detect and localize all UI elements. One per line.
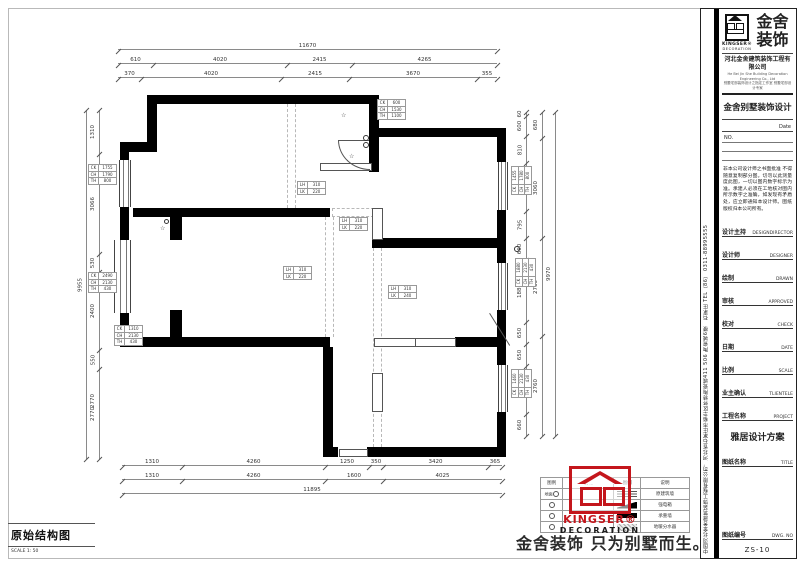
schedule-tag-row: TH1100: [378, 112, 405, 119]
schedule-tag-value: 600: [388, 100, 405, 106]
schedule-tag-key: LH: [389, 286, 399, 292]
schedule-tag-key: CH: [89, 280, 99, 286]
dimension-label: 4260: [182, 459, 325, 465]
schedule-tag-key: TH: [89, 178, 99, 184]
star-symbol: ☆: [341, 113, 346, 119]
dimension-label: 660: [517, 414, 523, 436]
date-label: Date: [722, 120, 793, 132]
title-block-row: 比例SCALE: [722, 355, 793, 375]
schedule-tag-value: 2130: [519, 370, 525, 387]
schedule-tag-key: CK: [516, 276, 522, 286]
title-block-row: 审核APPROVED: [722, 286, 793, 306]
dimension-line: [555, 112, 556, 436]
wall: [120, 207, 129, 240]
ruled-line: [722, 143, 793, 152]
dimension-column: 9955: [77, 110, 87, 459]
schedule-tag-value: 2490: [99, 273, 116, 279]
schedule-tag-row: CH2130: [89, 279, 116, 286]
schedule-tag-row: TH800: [89, 177, 116, 184]
dashed-wall-opening: [332, 208, 374, 217]
schedule-tag-row: CK1310: [115, 326, 142, 332]
schedule-tag-rotated: CK1460CH2130TH430: [511, 370, 531, 398]
dimension-label: 2770: [90, 391, 96, 411]
field-label-cn: 比例: [722, 365, 734, 374]
schedule-tag-row: TH430: [115, 338, 142, 345]
schedule-tag-value: 430: [529, 259, 535, 276]
dashed-line: [381, 248, 382, 447]
schedule-tag-value: 1880: [516, 259, 522, 276]
schedule-tag-row: TH430: [524, 370, 531, 397]
dimension-label: 4020: [153, 57, 287, 63]
field-label-en: CHECK: [778, 323, 793, 328]
field-label-en: DATE: [781, 346, 793, 351]
field-label-en: SCALE: [779, 369, 793, 374]
program-title: 金舍别墅装饰设计: [722, 95, 793, 120]
dimension-label: 11670: [118, 43, 497, 49]
schedule-tag-value: 430: [125, 339, 142, 345]
wall: [367, 447, 506, 457]
schedule-tag: LH310LK220: [297, 181, 326, 195]
dimension-label: 3420: [383, 459, 488, 465]
schedule-tag-key: CK: [378, 100, 388, 106]
kingser-seal-icon: [569, 466, 631, 514]
schedule-tag-row: CH2130: [518, 370, 525, 397]
schedule-tag-value: 1755: [99, 165, 116, 171]
schedule-tag: CK1460CH2130TH430: [511, 369, 532, 398]
schedule-tag-row: LH310: [340, 218, 367, 224]
schedule-tag: LH310LK220: [339, 217, 368, 231]
schedule-tag-value: 430: [525, 370, 531, 387]
star-symbol: ☆: [160, 226, 165, 232]
title-block-row: 日期DATE: [722, 332, 793, 352]
schedule-tag-value: 800: [525, 167, 531, 184]
schedule-tag-key: LK: [340, 225, 350, 231]
field-label-cn: 设计师: [722, 250, 740, 259]
dashed-line: [325, 217, 326, 337]
schedule-tag-key: LK: [389, 293, 399, 299]
dimension-label: 550: [90, 350, 96, 369]
company-name-en: He Bei Jin She Building Decoration Engin…: [722, 72, 793, 81]
dimension-label: 600: [517, 116, 523, 136]
circle-legend-icon: [549, 513, 555, 519]
schedule-tag-key: CH: [89, 172, 99, 178]
title-block-row: 业主确认TLIENTELE: [722, 378, 793, 398]
door-frame: [372, 373, 383, 412]
wall: [379, 128, 506, 137]
copyright-notice: 非本公司设计师之书面批准 不得随意复制部分图。切勿以此测量度此图，一切以图内数字…: [723, 167, 792, 213]
schedule-tag: CK2490CH2130TH430: [88, 272, 117, 293]
wall: [170, 310, 182, 337]
dimension-label: 11895: [122, 487, 502, 493]
schedule-tag: CK1880CH2130TH430: [515, 258, 536, 287]
sliding-door: [374, 338, 456, 347]
schedule-tag-row: LK220: [284, 273, 311, 280]
dimension-label: 1310: [122, 459, 182, 465]
field-label-cn: 业主确认: [722, 388, 746, 397]
schedule-tag-row: TH430: [89, 285, 116, 292]
dimension-label: 9970: [546, 112, 552, 436]
dimension-line: [118, 63, 497, 64]
schedule-tag-key: TH: [525, 387, 531, 397]
door-frame: [372, 208, 383, 240]
title-block-row: 绘制DRAWN: [722, 263, 793, 283]
schedule-tag-key: TH: [529, 276, 535, 286]
wall: [497, 128, 506, 162]
schedule-tag-key: LH: [340, 218, 350, 224]
schedule-tag-key: CH: [519, 184, 525, 194]
window: [119, 160, 131, 207]
dimension-row: 610402024154265: [118, 56, 497, 64]
schedule-tag-rotated: CK1455CH1780TH800: [511, 167, 531, 195]
dimension-label: 4020: [141, 71, 281, 77]
window: [498, 263, 508, 310]
company-tagline: 别墅宅邸装饰设计之指定工作室 别墅宅邸设计专家: [722, 81, 793, 90]
field-label-en: DRAWN: [776, 277, 793, 282]
brand-cn: 金舍 装饰: [752, 13, 793, 49]
wall: [323, 347, 333, 447]
drawing-title-block: 原始结构图: [8, 523, 95, 547]
schedule-tag-value: 1780: [519, 167, 525, 184]
dimension-line: [122, 493, 502, 494]
schedule-tag-key: TH: [525, 184, 531, 194]
schedule-tag-key: LK: [298, 189, 308, 195]
dimension-row: 11895: [122, 486, 502, 494]
schedule-tag: CK1755CH1790TH800: [88, 164, 117, 185]
dimension-label: 530: [90, 254, 96, 272]
field-label-cn: 校对: [722, 319, 734, 328]
fixture-circle: [164, 219, 169, 224]
dimension-line: [86, 110, 87, 459]
field-label-cn: 绘制: [722, 273, 734, 282]
schedule-tag-key: CH: [378, 107, 388, 113]
schedule-tag-rotated: CK1880CH2130TH430: [515, 259, 535, 287]
kingser-stamp: KINGSER® DECORATION: [556, 466, 644, 536]
fixture-circle: [363, 142, 369, 148]
dwg-number: ZS-10: [722, 543, 793, 554]
field-label-en: DESIGNDIRECTOR: [752, 231, 793, 236]
schedule-tag-key: CK: [89, 165, 99, 171]
schedule-tag-value: 310: [350, 218, 367, 224]
scale-label: SCALE 1: 50: [11, 549, 38, 554]
schedule-tag-value: 220: [294, 274, 311, 280]
dimension-label: 1250: [325, 459, 369, 465]
schedule-tag-value: 2130: [523, 259, 529, 276]
field-label-en: TLIENTELE: [769, 392, 793, 397]
dimension-label: 2760: [533, 238, 539, 336]
dashed-line: [373, 248, 374, 447]
field-label-en: APPROVED: [769, 300, 793, 305]
schedule-tag-row: CK1460: [512, 370, 518, 397]
fixture-circle: [363, 135, 369, 141]
dimension-line: [542, 112, 543, 436]
drawing-sheet: 1167061040202415426537040202415367035513…: [0, 0, 800, 567]
schedule-tag-value: 310: [399, 286, 416, 292]
field-label-cn: 设计主持: [722, 227, 746, 236]
ruled-line: [722, 152, 793, 161]
dimension-label: 795: [517, 211, 523, 238]
schedule-tag-value: 1100: [388, 113, 405, 119]
dimension-label: 680: [533, 112, 539, 138]
star-symbol: ☆: [349, 154, 354, 160]
schedule-tag-row: CH2130: [522, 259, 529, 286]
dashed-line: [333, 217, 334, 337]
schedule-tag-key: LK: [284, 274, 294, 280]
dimension-line: [122, 479, 502, 480]
title-row: 图纸名称 TITLE: [722, 447, 793, 467]
schedule-tag-key: CH: [523, 276, 529, 286]
wall: [372, 238, 506, 248]
dimension-label: 1600: [325, 473, 383, 479]
schedule-tag-value: 1460: [512, 370, 518, 387]
schedule-tag-value: 240: [399, 293, 416, 299]
wall: [323, 447, 338, 457]
dimension-label: 2770: [90, 369, 96, 459]
schedule-tag-row: LH310: [298, 182, 325, 188]
circle-legend-icon: [549, 524, 555, 530]
brand-block: KINGSER® DECORATION 金舍 装饰: [722, 13, 793, 51]
schedule-tag: CK600CH1530TH1100: [377, 99, 406, 120]
schedule-tag-key: TH: [378, 113, 388, 119]
field-label-cn: 日期: [722, 342, 734, 351]
schedule-tag-key: CK: [89, 273, 99, 279]
wall: [133, 208, 330, 217]
dimension-label: 2415: [287, 57, 352, 63]
schedule-tag: CK1455CH1780TH800: [511, 166, 532, 195]
schedule-tag-row: CK1455: [512, 167, 518, 194]
wall: [170, 217, 182, 240]
schedule-tag-value: 1310: [125, 326, 142, 332]
dimension-label: 4025: [383, 473, 502, 479]
schedule-tag-key: CK: [512, 184, 518, 194]
project-name: 雅居设计方案: [722, 424, 793, 447]
schedule-tag-row: CK1880: [516, 259, 522, 286]
dashed-line: [287, 104, 288, 208]
schedule-tag-key: CK: [115, 326, 125, 332]
dimension-label: 2760: [533, 336, 539, 436]
title-strip: 中国河北金舍建筑装饰工程有限公司．河北省石家庄市裕华区怀特陶瓷城411 506 …: [700, 8, 797, 559]
dimension-label: 3670: [349, 71, 477, 77]
schedule-tag: LH310LK220: [283, 266, 312, 280]
schedule-tag-value: 2130: [125, 333, 142, 339]
stamp-brand-text: KINGSER®: [556, 514, 644, 526]
circle-legend-icon: [549, 502, 555, 508]
dimension-label: 650: [517, 322, 523, 344]
window: [498, 162, 508, 210]
field-label-en: DESIGNER: [770, 254, 793, 259]
schedule-tag-value: 310: [294, 267, 311, 273]
schedule-tag-key: CH: [519, 387, 525, 397]
dimension-row: 1310426012503503420365: [122, 458, 502, 466]
dimension-row: 11670: [118, 42, 497, 50]
schedule-tag-key: LH: [284, 267, 294, 273]
company-address-vertical: 中国河北金舍建筑装饰工程有限公司．河北省石家庄市裕华区怀特陶瓷城411 506 …: [702, 11, 713, 554]
schedule-tag-value: 220: [350, 225, 367, 231]
divider-bar: [714, 9, 719, 558]
dashed-line: [295, 104, 296, 208]
dimension-label: 3060: [533, 138, 539, 238]
dimension-row: 370402024153670355: [118, 70, 497, 78]
wall: [147, 95, 378, 104]
schedule-tag-row: LH310: [389, 286, 416, 292]
kingser-logo-icon: [725, 14, 749, 41]
drawing-title: 原始结构图: [11, 527, 95, 543]
schedule-tag-row: CK1755: [89, 165, 116, 171]
wall: [497, 248, 506, 263]
no-label: NO.: [722, 132, 793, 143]
wall: [120, 142, 153, 152]
schedule-tag-value: 430: [99, 286, 116, 292]
schedule-tag-row: CK2490: [89, 273, 116, 279]
schedule-tag-row: CH2130: [115, 332, 142, 339]
legend-label: 承重墙: [640, 511, 689, 522]
schedule-tag-value: 2130: [99, 280, 116, 286]
title-block-row: 设计师DESIGNER: [722, 240, 793, 260]
schedule-tag-value: 220: [308, 189, 325, 195]
schedule-tag-row: CK600: [378, 100, 405, 106]
dimension-label: 610: [118, 57, 153, 63]
schedule-tag-row: LK220: [340, 224, 367, 231]
title-block-rows: 设计主持DESIGNDIRECTOR设计师DESIGNER绘制DRAWN审核AP…: [722, 217, 793, 424]
brand-en-sub: DECORATION: [722, 47, 752, 51]
dimension-label: 650: [517, 344, 523, 366]
schedule-tag-key: TH: [115, 339, 125, 345]
dimension-label: 810: [517, 136, 523, 163]
title-block-row: 工程名称PROJECT: [722, 401, 793, 421]
field-label-cn: 审核: [722, 296, 734, 305]
window: [498, 365, 508, 412]
schedule-tag-row: CH1780: [518, 167, 525, 194]
wall: [120, 152, 129, 160]
title-block-row: 设计主持DESIGNDIRECTOR: [722, 217, 793, 237]
dimension-row: 1310426016004025: [122, 472, 502, 480]
legend-label: 强电箱: [640, 500, 689, 511]
wall: [120, 337, 330, 347]
schedule-tag-row: CH1790: [89, 171, 116, 178]
schedule-tag-row: LK220: [298, 188, 325, 195]
legend-label: 原建筑墙: [640, 489, 689, 500]
field-label-en: PROJECT: [774, 415, 793, 420]
dimension-column: 9970: [546, 112, 556, 436]
schedule-tag-value: 1790: [99, 172, 116, 178]
schedule-tag-row: TH800: [524, 167, 531, 194]
dimension-label: 2415: [281, 71, 349, 77]
wall: [497, 347, 506, 365]
schedule-tag-row: TH430: [528, 259, 535, 286]
company-name: 河北金舍建筑装饰工程有限公司: [722, 53, 793, 72]
dimension-label: 4260: [182, 473, 325, 479]
dwg-no-row: 图纸编号 DWG. NO: [722, 520, 793, 540]
schedule-tag-key: CH: [115, 333, 125, 339]
dimension-label: 660: [517, 238, 523, 260]
dimension-line: [118, 49, 497, 50]
dimension-label: 4265: [352, 57, 497, 63]
schedule-tag-row: CH1530: [378, 106, 405, 113]
dimension-label: 370: [118, 71, 141, 77]
field-label-cn: 工程名称: [722, 411, 746, 420]
schedule-tag: LH310LK240: [388, 285, 417, 299]
schedule-tag-row: LK240: [389, 292, 416, 299]
dimension-label: 9955: [77, 110, 83, 459]
entry-threshold: [339, 449, 368, 457]
slogan-text: 金舍装饰 只为别墅而生。: [516, 530, 710, 554]
title-block-row: 校对CHECK: [722, 309, 793, 329]
schedule-tag-row: LH310: [284, 267, 311, 273]
dimension-line: [118, 77, 497, 78]
legend-header: 说明: [640, 478, 689, 489]
schedule-tag-value: 800: [99, 178, 116, 184]
schedule-tag: CK1310CH2130TH430: [114, 325, 143, 346]
schedule-tag-value: 1455: [512, 167, 518, 184]
schedule-tag-key: TH: [89, 286, 99, 292]
schedule-tag-key: LH: [298, 182, 308, 188]
schedule-tag-value: 310: [308, 182, 325, 188]
dimension-line: [122, 465, 502, 466]
schedule-tag-key: CK: [512, 387, 518, 397]
dimension-label: 1310: [122, 473, 182, 479]
wall: [497, 412, 506, 457]
dimension-label: 1310: [90, 110, 96, 154]
schedule-tag-value: 1530: [388, 107, 405, 113]
